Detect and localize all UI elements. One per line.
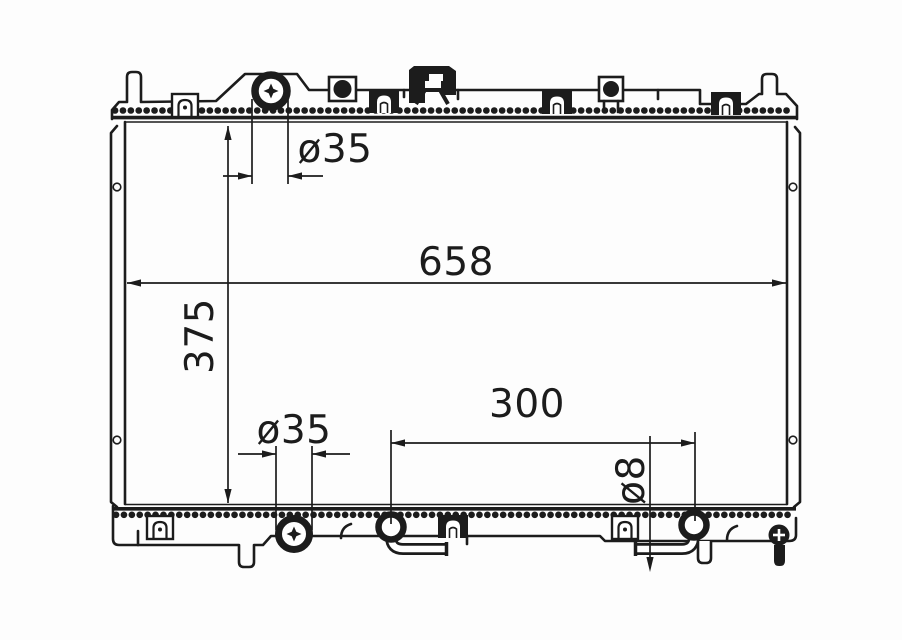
- mounting-bracket-top-mid-right: [542, 91, 572, 114]
- mounting-pad-stud-right: [599, 77, 623, 112]
- dimension-label-bottom-filler: ø35: [257, 408, 332, 453]
- mounting-bracket-top-mid-left: [369, 90, 399, 113]
- mounting-bracket-bottom-right: [612, 516, 638, 539]
- left-side-channel: [111, 122, 125, 507]
- dimension-bottom-filler-diameter: ø35: [238, 408, 350, 530]
- filler-neck: [255, 75, 287, 107]
- mounting-pad-stud-left: [329, 77, 356, 101]
- mounting-bracket-top-right: [711, 92, 741, 115]
- locating-peg: [698, 541, 711, 563]
- radiator-technical-drawing: ø35 658 375 ø35 300 ø8: [0, 0, 902, 640]
- mounting-bracket-bottom-left: [147, 516, 173, 539]
- drain-plug: [769, 525, 790, 567]
- dimension-label-pipe-diameter: ø8: [609, 455, 654, 505]
- dimension-label-core-width: 658: [418, 240, 494, 285]
- core-top-band: [112, 111, 797, 123]
- drawing-canvas: ø35 658 375 ø35 300 ø8: [0, 0, 902, 640]
- dimension-label-fitting-spacing: 300: [489, 382, 565, 427]
- dimension-core-height: 375: [178, 126, 232, 503]
- mounting-bracket-top-left: [172, 94, 198, 117]
- dimension-label-core-height: 375: [178, 298, 223, 374]
- hose-guide-right: [727, 526, 737, 540]
- upper-clamp-bracket: [409, 66, 456, 104]
- mounting-bracket-bottom-mid: [438, 515, 468, 538]
- bottom-neck: [279, 519, 310, 550]
- dimension-core-width: 658: [127, 240, 786, 287]
- dimension-label-top-filler: ø35: [298, 127, 373, 172]
- right-side-channel: [787, 122, 800, 507]
